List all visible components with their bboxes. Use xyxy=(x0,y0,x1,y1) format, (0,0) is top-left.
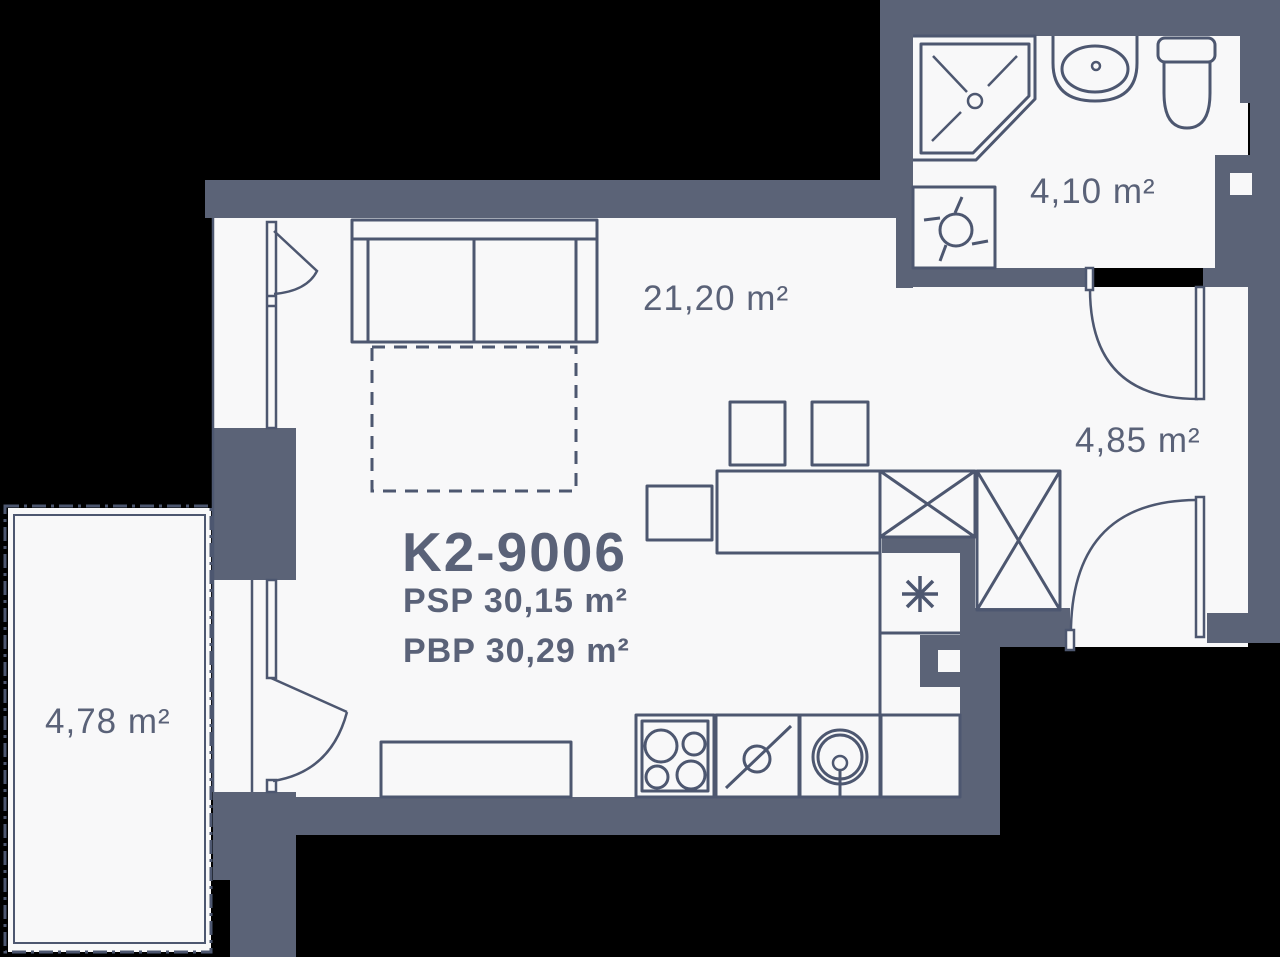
window-upper-glazing xyxy=(267,222,276,428)
wall-right-upper xyxy=(1240,33,1280,103)
wall-hallway-bottom-left xyxy=(960,608,1070,647)
psp-area-text: PSP 30,15 m² xyxy=(403,582,628,621)
fridge-asterisk-icon xyxy=(902,576,938,612)
wall-kitchen-right xyxy=(960,647,1000,835)
wall-hallway-right xyxy=(1248,287,1280,643)
floorplan-drawing xyxy=(0,0,1280,957)
hallway-floor xyxy=(1000,287,1248,647)
balcony-area-label: 4,78 m² xyxy=(45,702,171,742)
wall-living-top xyxy=(205,180,896,218)
pbp-area-text: PBP 30,29 m² xyxy=(403,632,630,671)
wall-closet-strip xyxy=(960,553,975,610)
wall-bathroom-bottom-right xyxy=(1203,268,1280,287)
wall-wardrobe-bar xyxy=(882,537,975,553)
bathroom-door-leaf xyxy=(1196,287,1204,399)
wall-right-notch xyxy=(1250,103,1280,155)
entrance-door-leaf xyxy=(1196,497,1204,637)
floorplan-canvas: 21,20 m² 4,10 m² 4,85 m² 4,78 m² K2-9006… xyxy=(0,0,1280,957)
wall-bathroom-bottom-left xyxy=(896,268,1090,287)
window-lower-glazing xyxy=(267,580,276,678)
living-room-floor xyxy=(213,218,1000,797)
wall-bottom-left-block xyxy=(213,792,296,880)
living-room-area-label: 21,20 m² xyxy=(643,279,789,319)
wall-bottom-left-lower xyxy=(230,880,296,957)
hallway-area-label: 4,85 m² xyxy=(1075,421,1201,461)
shaft-opening xyxy=(1230,173,1252,195)
wall-balcony-pier xyxy=(213,428,296,580)
bathroom-door-jamb xyxy=(1086,268,1093,290)
unit-id-title: K2-9006 xyxy=(402,520,627,584)
vent-shaft-opening xyxy=(938,650,963,672)
wall-living-bottom xyxy=(296,797,1000,835)
entrance-door-jamb xyxy=(1066,630,1074,650)
wall-bathroom-top xyxy=(880,0,1280,36)
wall-entrance-right-block xyxy=(1207,613,1280,643)
sink-faucet xyxy=(833,756,847,770)
bathroom-area-label: 4,10 m² xyxy=(1030,172,1156,212)
